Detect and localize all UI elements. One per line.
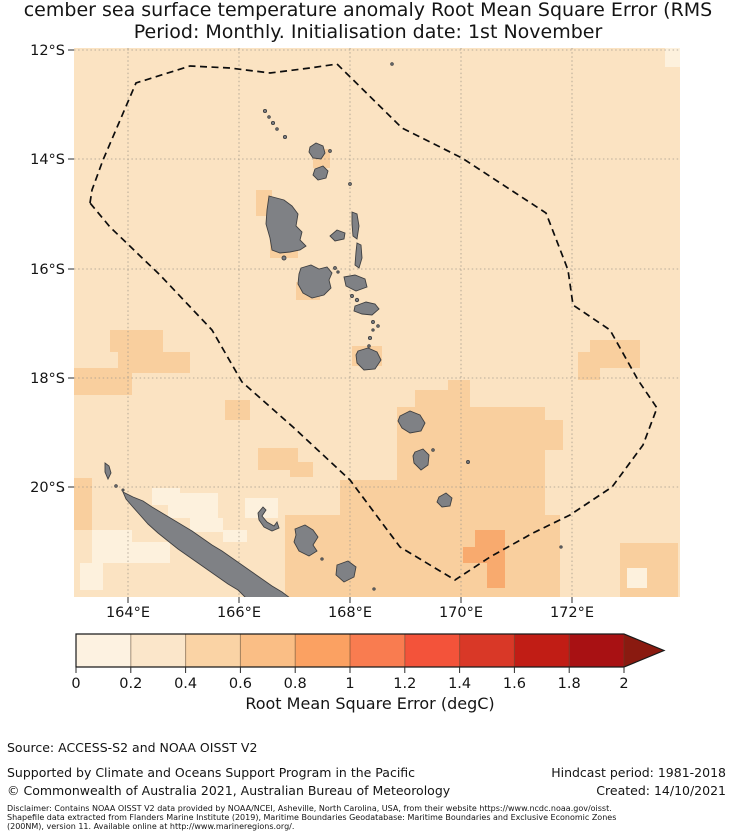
hindcast-line: Hindcast period: 1981-2018 <box>551 765 726 780</box>
island-malo <box>282 256 286 260</box>
colorbar: 0 0.2 0.4 0.6 0.8 1 1.2 1.4 1.6 1.8 2 Ro… <box>71 634 664 713</box>
lat-tick-label: 16°S <box>30 262 65 278</box>
colorbar-tick-label: 2 <box>619 676 628 692</box>
colorbar-segment <box>514 634 569 667</box>
source-line: Source: ACCESS-S2 and NOAA OISST V2 <box>7 740 257 755</box>
island-dot <box>368 345 371 348</box>
map-figure-canvas: 12°S 14°S 16°S 18°S 20°S 164°E 166°E 168… <box>0 0 736 839</box>
island-dot <box>377 325 380 328</box>
colorbar-tick-label: 0.4 <box>174 676 197 692</box>
island-futuna <box>467 461 470 464</box>
island-lopevi <box>355 298 358 301</box>
figure-root: cember sea surface temperature anomaly R… <box>0 0 736 839</box>
island-dot <box>329 150 332 153</box>
colorbar-segment <box>240 634 295 667</box>
island-dot <box>337 271 339 273</box>
lon-tick-label: 172°E <box>550 605 594 621</box>
lat-tick-label: 14°S <box>30 152 65 168</box>
disclaimer-line-3: (200NM), version 11. Available online at… <box>7 822 732 832</box>
island-dot <box>263 109 266 112</box>
island-dot <box>560 546 562 548</box>
colorbar-segment <box>131 634 186 667</box>
island-dot <box>349 183 352 186</box>
colorbar-ticks <box>76 667 624 673</box>
colorbar-tick-label: 1.4 <box>448 676 471 692</box>
island-dot <box>268 116 271 119</box>
island-aniwa <box>432 449 435 452</box>
colorbar-tick-label: 0.8 <box>284 676 307 692</box>
island-paama <box>351 295 354 298</box>
lat-tick-label: 20°S <box>30 480 65 496</box>
colorbar-tick-label: 0.6 <box>229 676 252 692</box>
lat-axis: 12°S 14°S 16°S 18°S 20°S <box>30 43 74 496</box>
colorbar-segment <box>460 634 515 667</box>
supported-line: Supported by Climate and Oceans Support … <box>7 765 415 780</box>
lon-axis: 164°E 166°E 168°E 170°E 172°E <box>106 597 594 621</box>
lon-tick-label: 168°E <box>328 605 372 621</box>
colorbar-segment <box>295 634 350 667</box>
rmse-field <box>74 48 680 598</box>
island-tiga <box>321 558 323 560</box>
colorbar-tick-label: 1.2 <box>393 676 416 692</box>
island-dot <box>391 63 394 66</box>
island-emae <box>368 336 371 339</box>
island-dot <box>115 485 118 488</box>
colorbar-tick-label: 1 <box>345 676 354 692</box>
lon-tick-label: 170°E <box>439 605 483 621</box>
lon-tick-label: 166°E <box>217 605 261 621</box>
colorbar-segment <box>350 634 405 667</box>
colorbar-axis-label: Root Mean Square Error (degC) <box>245 694 494 713</box>
copyright-line: © Commonwealth of Australia 2021, Austra… <box>7 783 450 798</box>
colorbar-segment <box>76 634 131 667</box>
colorbar-segment <box>405 634 460 667</box>
island-dot <box>271 121 274 124</box>
island-dot <box>334 267 337 270</box>
colorbar-tick-label: 0 <box>71 676 80 692</box>
colorbar-tick-label: 1.8 <box>558 676 581 692</box>
colorbar-tick-label: 0.2 <box>119 676 142 692</box>
colorbar-over-arrow <box>624 634 664 667</box>
island-walpole <box>373 588 375 590</box>
colorbar-segment <box>186 634 241 667</box>
lat-tick-label: 18°S <box>30 371 65 387</box>
created-line: Created: 14/10/2021 <box>596 783 726 798</box>
island-dot <box>372 329 374 331</box>
island-dot <box>276 128 279 131</box>
lat-tick-label: 12°S <box>30 43 65 59</box>
island-dot <box>372 321 375 324</box>
colorbar-tick-labels: 0 0.2 0.4 0.6 0.8 1 1.2 1.4 1.6 1.8 2 <box>71 676 628 692</box>
lon-tick-label: 164°E <box>106 605 150 621</box>
colorbar-tick-label: 1.6 <box>503 676 526 692</box>
island-dot <box>122 489 124 491</box>
colorbar-segment <box>569 634 624 667</box>
island-dot <box>283 135 286 138</box>
